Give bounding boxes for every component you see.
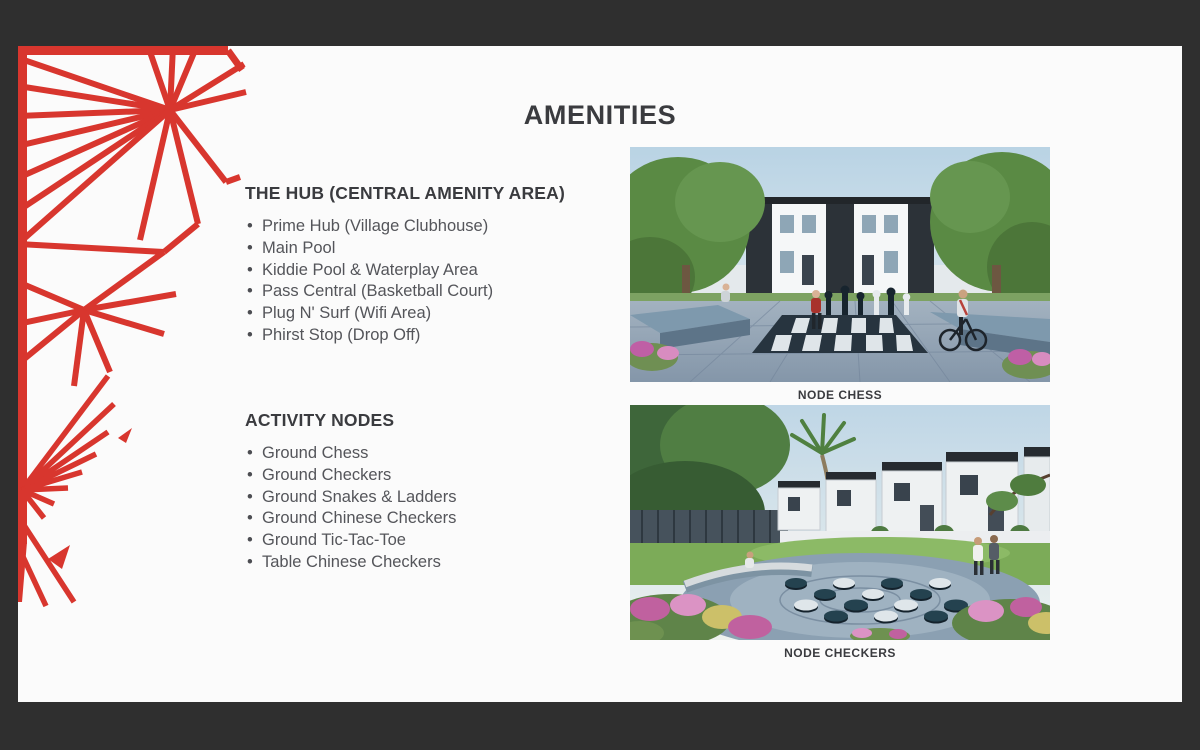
- red-geometric-pattern: [18, 46, 248, 626]
- list-item: Phirst Stop (Drop Off): [245, 325, 605, 347]
- amenity-list-nodes: Ground Chess Ground Checkers Ground Snak…: [245, 443, 605, 574]
- list-item: Table Chinese Checkers: [245, 552, 605, 574]
- list-item: Kiddie Pool & Waterplay Area: [245, 260, 605, 282]
- amenity-list-hub: Prime Hub (Village Clubhouse) Main Pool …: [245, 216, 605, 347]
- list-item: Ground Snakes & Ladders: [245, 487, 605, 509]
- section-activity-nodes: ACTIVITY NODES Ground Chess Ground Check…: [245, 409, 605, 574]
- list-item: Pass Central (Basketball Court): [245, 281, 605, 303]
- list-item: Ground Chinese Checkers: [245, 508, 605, 530]
- list-item: Main Pool: [245, 238, 605, 260]
- list-item: Prime Hub (Village Clubhouse): [245, 216, 605, 238]
- figure-caption: NODE CHESS: [630, 388, 1050, 402]
- page-title: AMENITIES: [18, 100, 1182, 131]
- list-item: Ground Tic-Tac-Toe: [245, 530, 605, 552]
- list-item: Ground Chess: [245, 443, 605, 465]
- section-heading: ACTIVITY NODES: [245, 409, 605, 431]
- node-checkers-photo: [630, 405, 1050, 640]
- figure-caption: NODE CHECKERS: [630, 646, 1050, 660]
- figure-node-checkers: NODE CHECKERS: [630, 405, 1050, 660]
- node-chess-photo: [630, 147, 1050, 382]
- list-item: Ground Checkers: [245, 465, 605, 487]
- figure-node-chess: NODE CHESS: [630, 147, 1050, 402]
- section-heading: THE HUB (CENTRAL AMENITY AREA): [245, 182, 605, 204]
- slide: AMENITIES THE HUB (CENTRAL AMENITY AREA)…: [18, 46, 1182, 702]
- section-the-hub: THE HUB (CENTRAL AMENITY AREA) Prime Hub…: [245, 182, 605, 347]
- list-item: Plug N' Surf (Wifi Area): [245, 303, 605, 325]
